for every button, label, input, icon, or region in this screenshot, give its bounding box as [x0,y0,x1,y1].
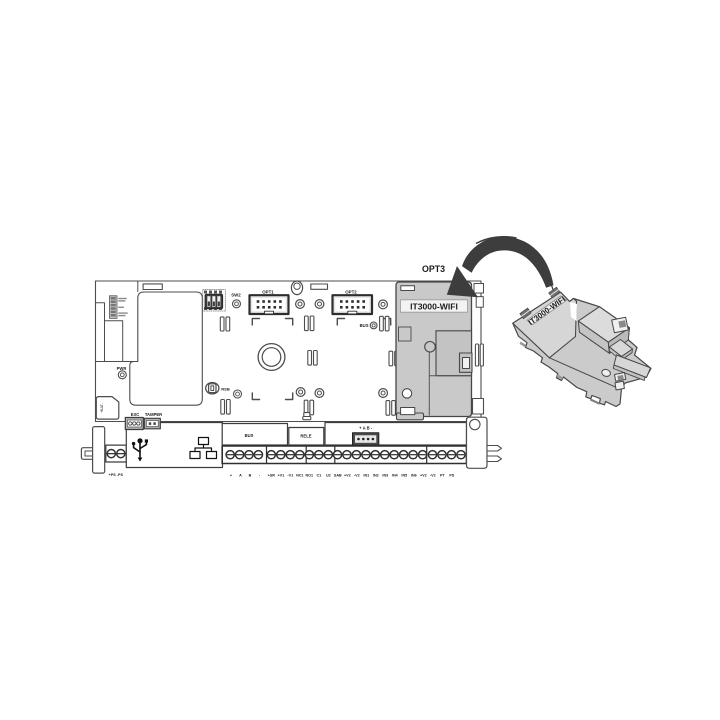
svg-text:A: A [239,473,242,477]
svg-text:+PS -PS: +PS -PS [109,473,124,477]
svg-text:RSB: RSB [221,386,230,391]
svg-text:IN6: IN6 [411,473,417,477]
svg-text:-V2: -V2 [354,473,360,477]
svg-text:OPT2: OPT2 [345,289,357,294]
svg-text:IN4: IN4 [392,473,399,477]
svg-text:+: + [230,473,232,477]
svg-text:+V1: +V1 [277,473,284,477]
svg-text:RELE: RELE [300,434,311,439]
svg-text:IN2: IN2 [373,473,379,477]
svg-text:NO1: NO1 [306,473,314,477]
svg-text:EXC: EXC [131,412,140,417]
svg-text:+V2: +V2 [344,473,351,477]
svg-text:B: B [249,473,252,477]
svg-text:IT3000-WIFI: IT3000-WIFI [410,301,458,311]
svg-text:BUS: BUS [360,323,369,328]
svg-text:TAMPER: TAMPER [145,412,162,417]
svg-text:+BAT-: +BAT- [100,402,104,413]
svg-text:IN3: IN3 [382,473,388,477]
svg-text:OPT3: OPT3 [422,264,445,274]
svg-text:SW2: SW2 [231,293,241,298]
svg-text:PS: PS [449,473,454,477]
svg-text:-V1: -V1 [287,473,293,477]
svg-text:+SR: +SR [268,473,276,477]
svg-text:IN5: IN5 [401,473,407,477]
svg-text:+V2: +V2 [420,473,427,477]
svg-text:-V2: -V2 [430,473,436,477]
svg-text:PT: PT [440,473,445,477]
svg-text:NC1: NC1 [296,473,303,477]
svg-text:U2: U2 [326,473,331,477]
svg-text:PWR: PWR [117,366,127,371]
svg-text:C1: C1 [316,473,321,477]
svg-text:OPT1: OPT1 [262,289,274,294]
svg-text:BUS: BUS [245,433,254,438]
svg-text:SAB: SAB [334,473,342,477]
svg-text:+ A B -: + A B - [359,426,373,431]
svg-text:IN1: IN1 [363,473,369,477]
